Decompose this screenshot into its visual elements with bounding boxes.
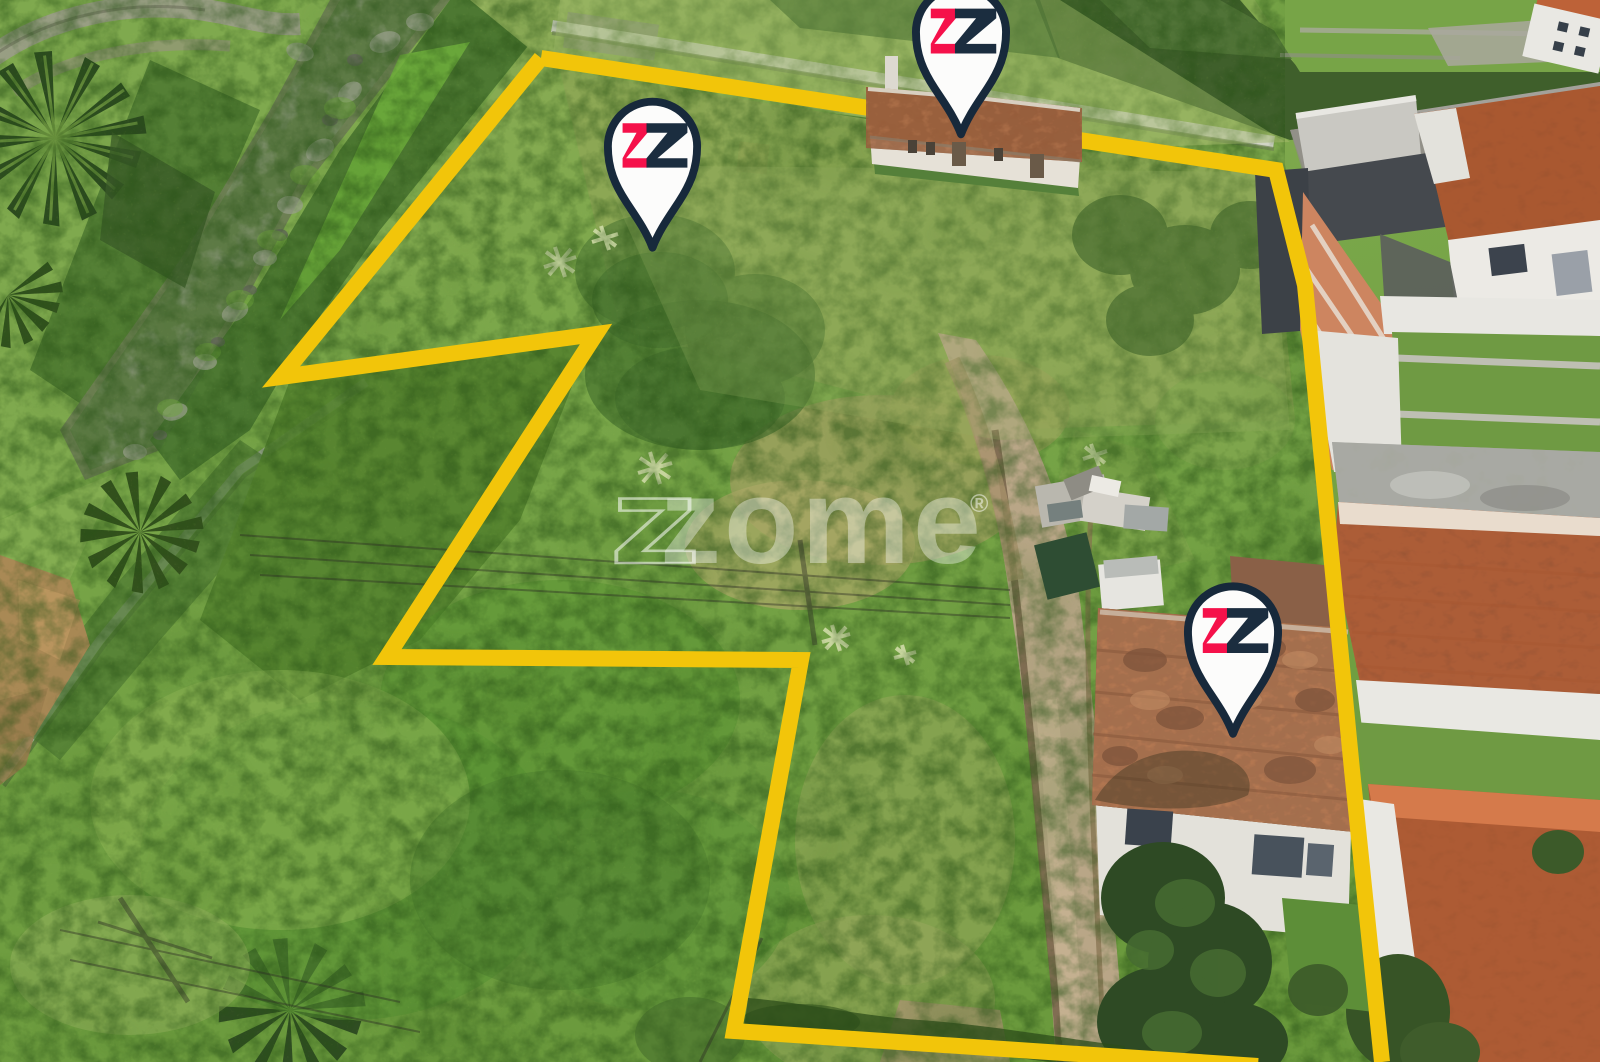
svg-text:®: ® — [970, 490, 989, 518]
svg-text:zome: zome — [660, 453, 984, 589]
